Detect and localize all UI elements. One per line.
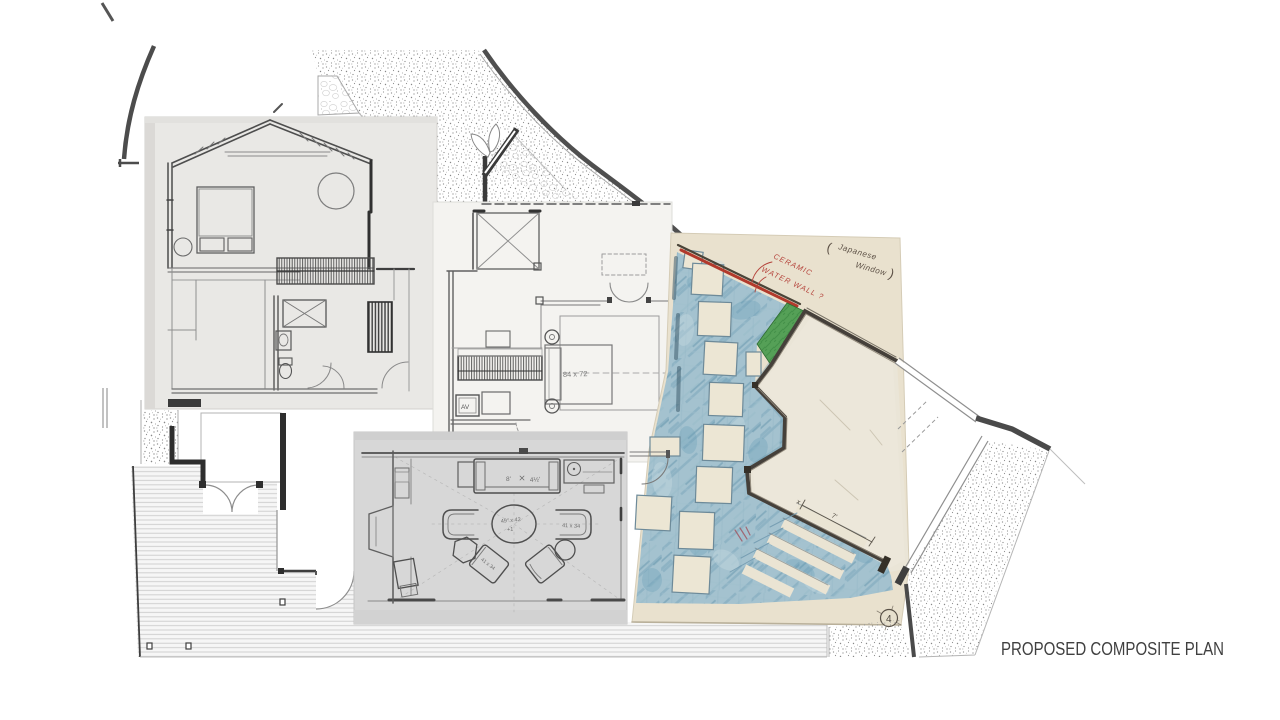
svg-text:+1: +1 (507, 527, 513, 533)
svg-text:41 x 34: 41 x 34 (562, 523, 580, 530)
svg-text:4½': 4½' (530, 475, 541, 484)
svg-text:84 x 72: 84 x 72 (563, 369, 588, 379)
svg-text:AV: AV (461, 404, 470, 411)
svg-text:8': 8' (506, 476, 511, 483)
svg-text:PROPOSED COMPOSITE PLAN: PROPOSED COMPOSITE PLAN (1001, 638, 1224, 659)
